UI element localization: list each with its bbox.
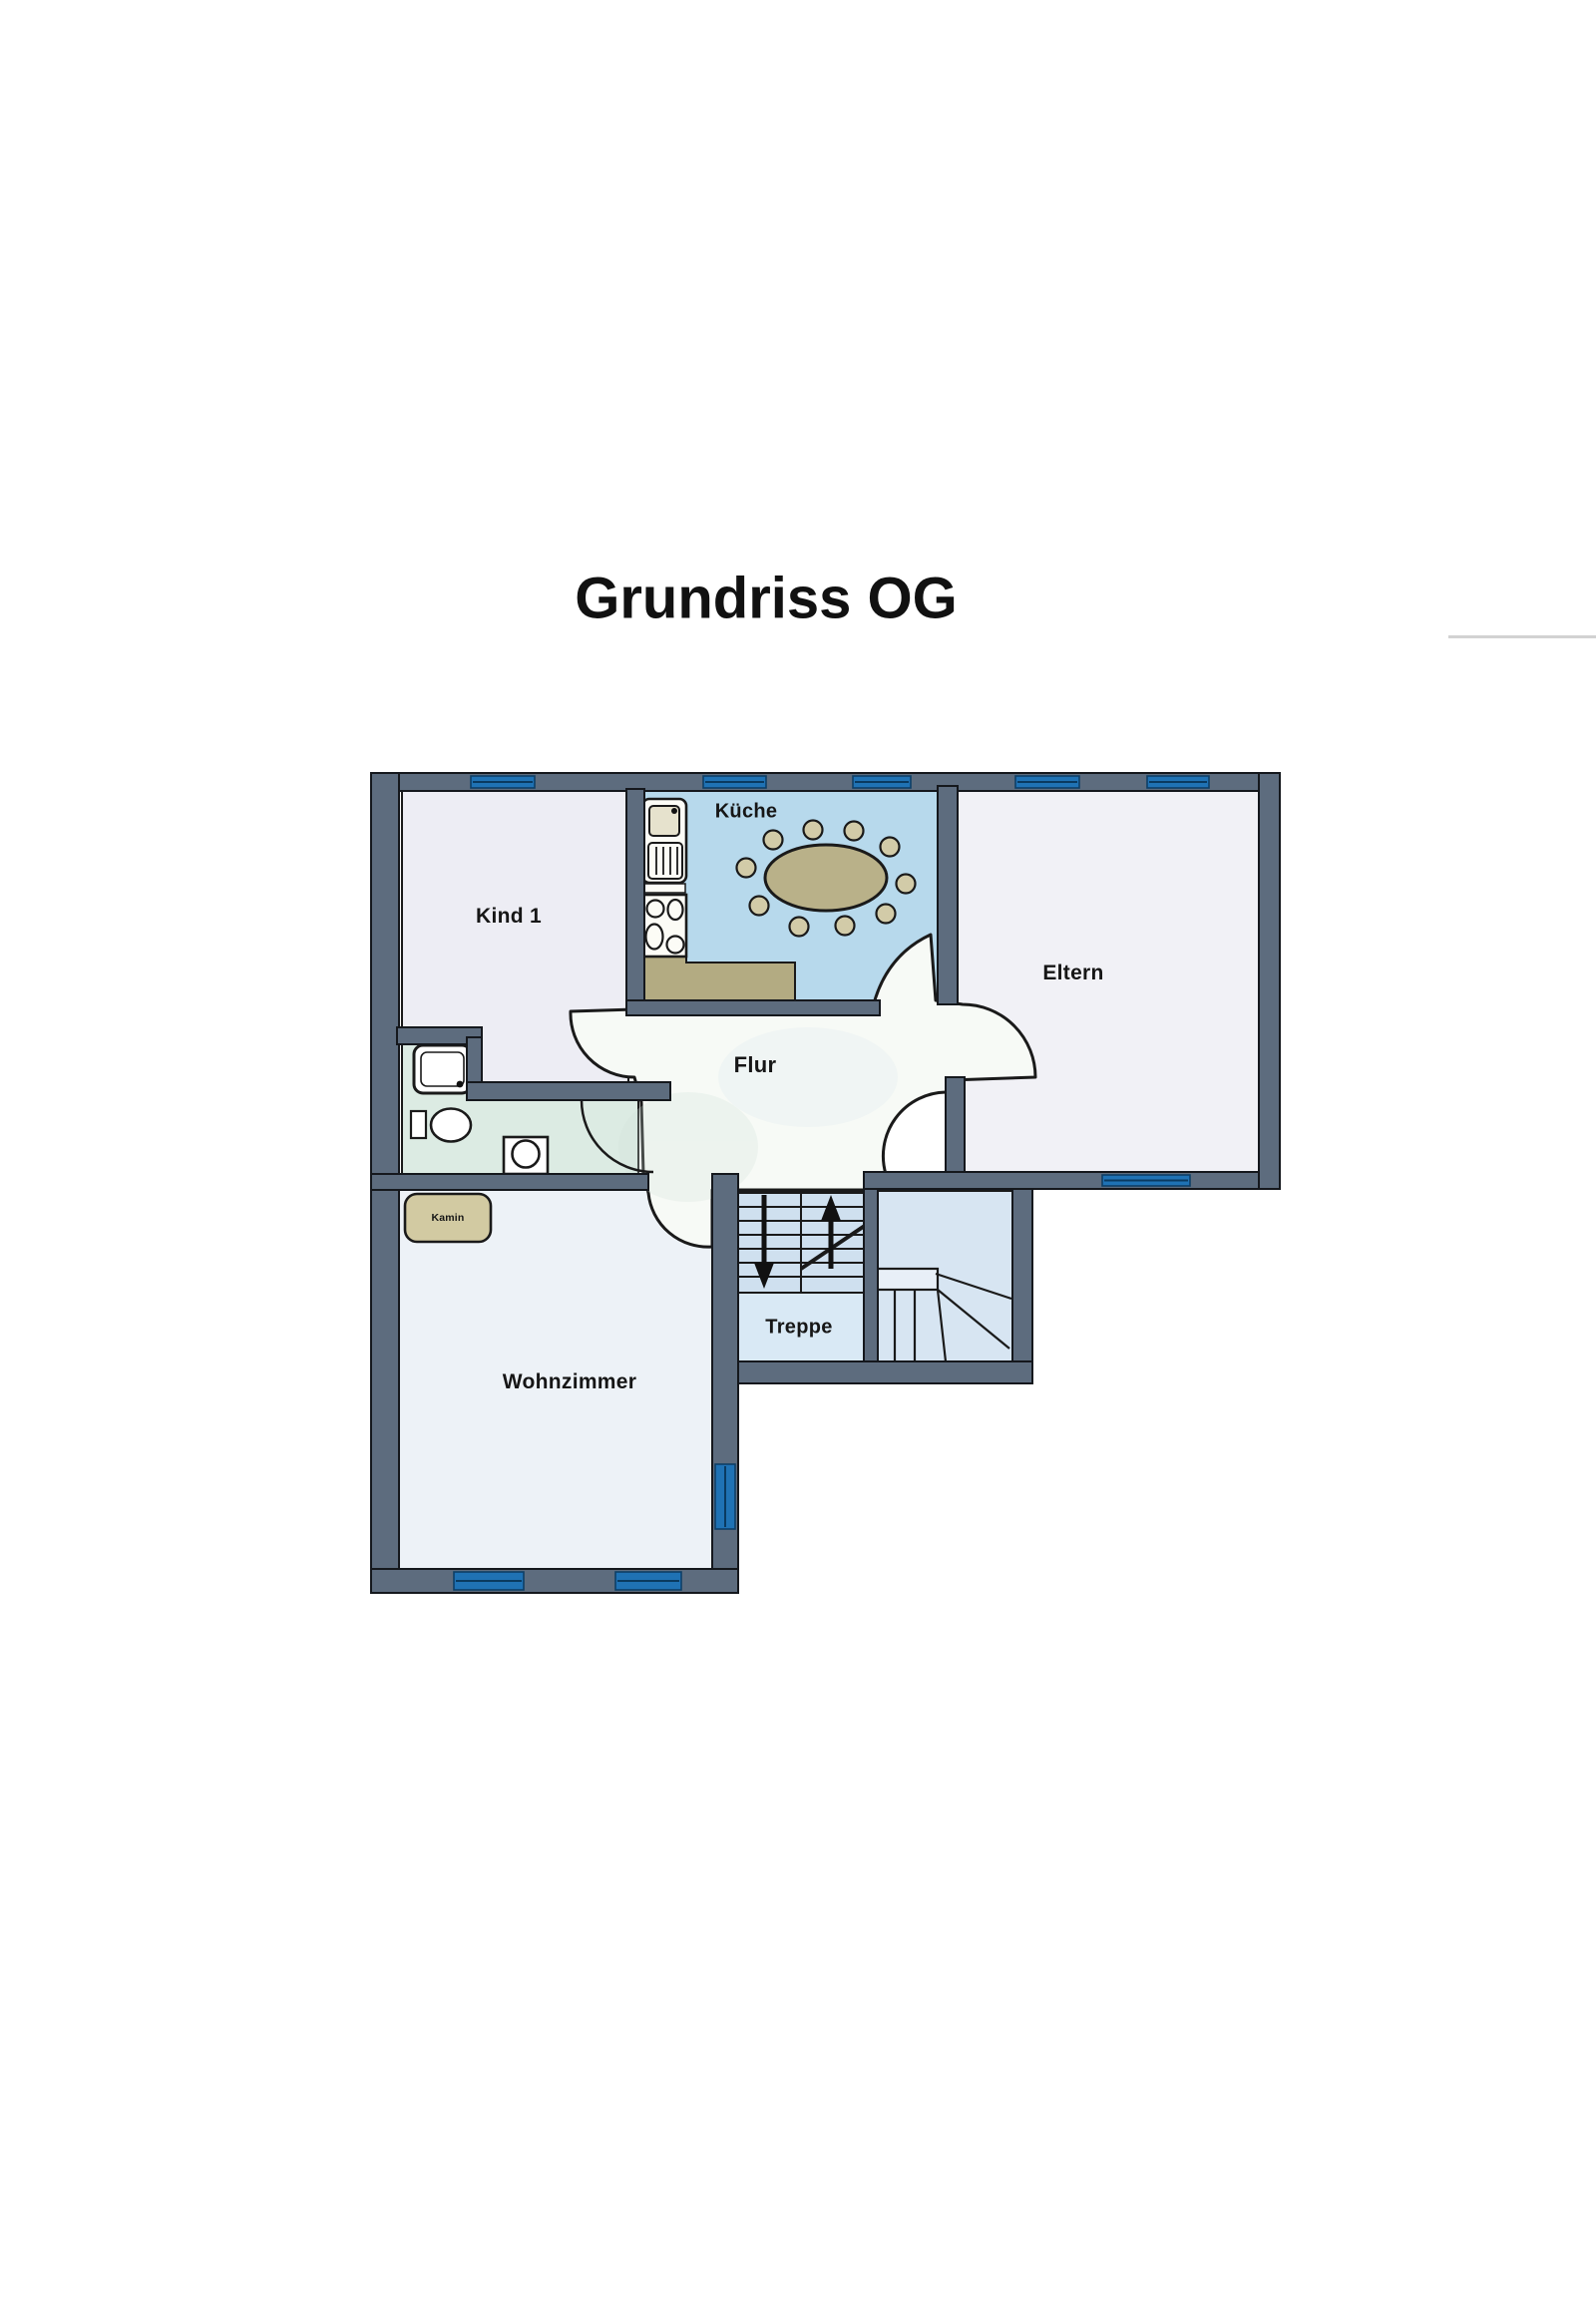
dining-table: [765, 845, 887, 911]
wall-bath-stub: [467, 1082, 670, 1100]
wall-stairs-bottom: [712, 1361, 1032, 1383]
document-page: Grundriss OG: [0, 0, 1596, 2315]
wall-wohnzimmer-bottom: [371, 1569, 738, 1593]
shower-drain-dot: [457, 1081, 464, 1088]
wall-stairs-right: [1012, 1189, 1032, 1383]
room-label-treppe: Treppe: [765, 1317, 832, 1340]
toilet-icon: [431, 1109, 471, 1142]
wall-stairs-mid: [864, 1189, 878, 1361]
wall-wohnzimmer-right: [712, 1174, 738, 1593]
toilet-tank: [411, 1111, 426, 1138]
wall-bath-bottom: [371, 1174, 648, 1190]
wall-eltern-flur: [946, 1077, 965, 1174]
room-label-wohnzimmer: Wohnzimmer: [503, 1370, 636, 1394]
winder-step-box: [876, 1269, 938, 1290]
wall-stairs-top: [864, 1172, 1280, 1189]
wall-right: [1259, 773, 1280, 1189]
room-label-kueche: Küche: [715, 801, 778, 824]
wall-kueche-eltern: [938, 786, 958, 1004]
eltern-floor: [956, 788, 1265, 1174]
room-label-eltern: Eltern: [1042, 962, 1103, 985]
wall-bath-nook: [467, 1037, 482, 1087]
washbasin-icon: [513, 1141, 540, 1168]
wall-kueche-bottom: [626, 1000, 880, 1015]
room-label-kamin: Kamin: [431, 1212, 464, 1224]
room-label-kind1: Kind 1: [476, 905, 542, 929]
floor-plan-drawing: [0, 0, 1596, 2315]
wall-kind1-kueche: [626, 789, 644, 1004]
room-label-flur: Flur: [734, 1052, 777, 1078]
